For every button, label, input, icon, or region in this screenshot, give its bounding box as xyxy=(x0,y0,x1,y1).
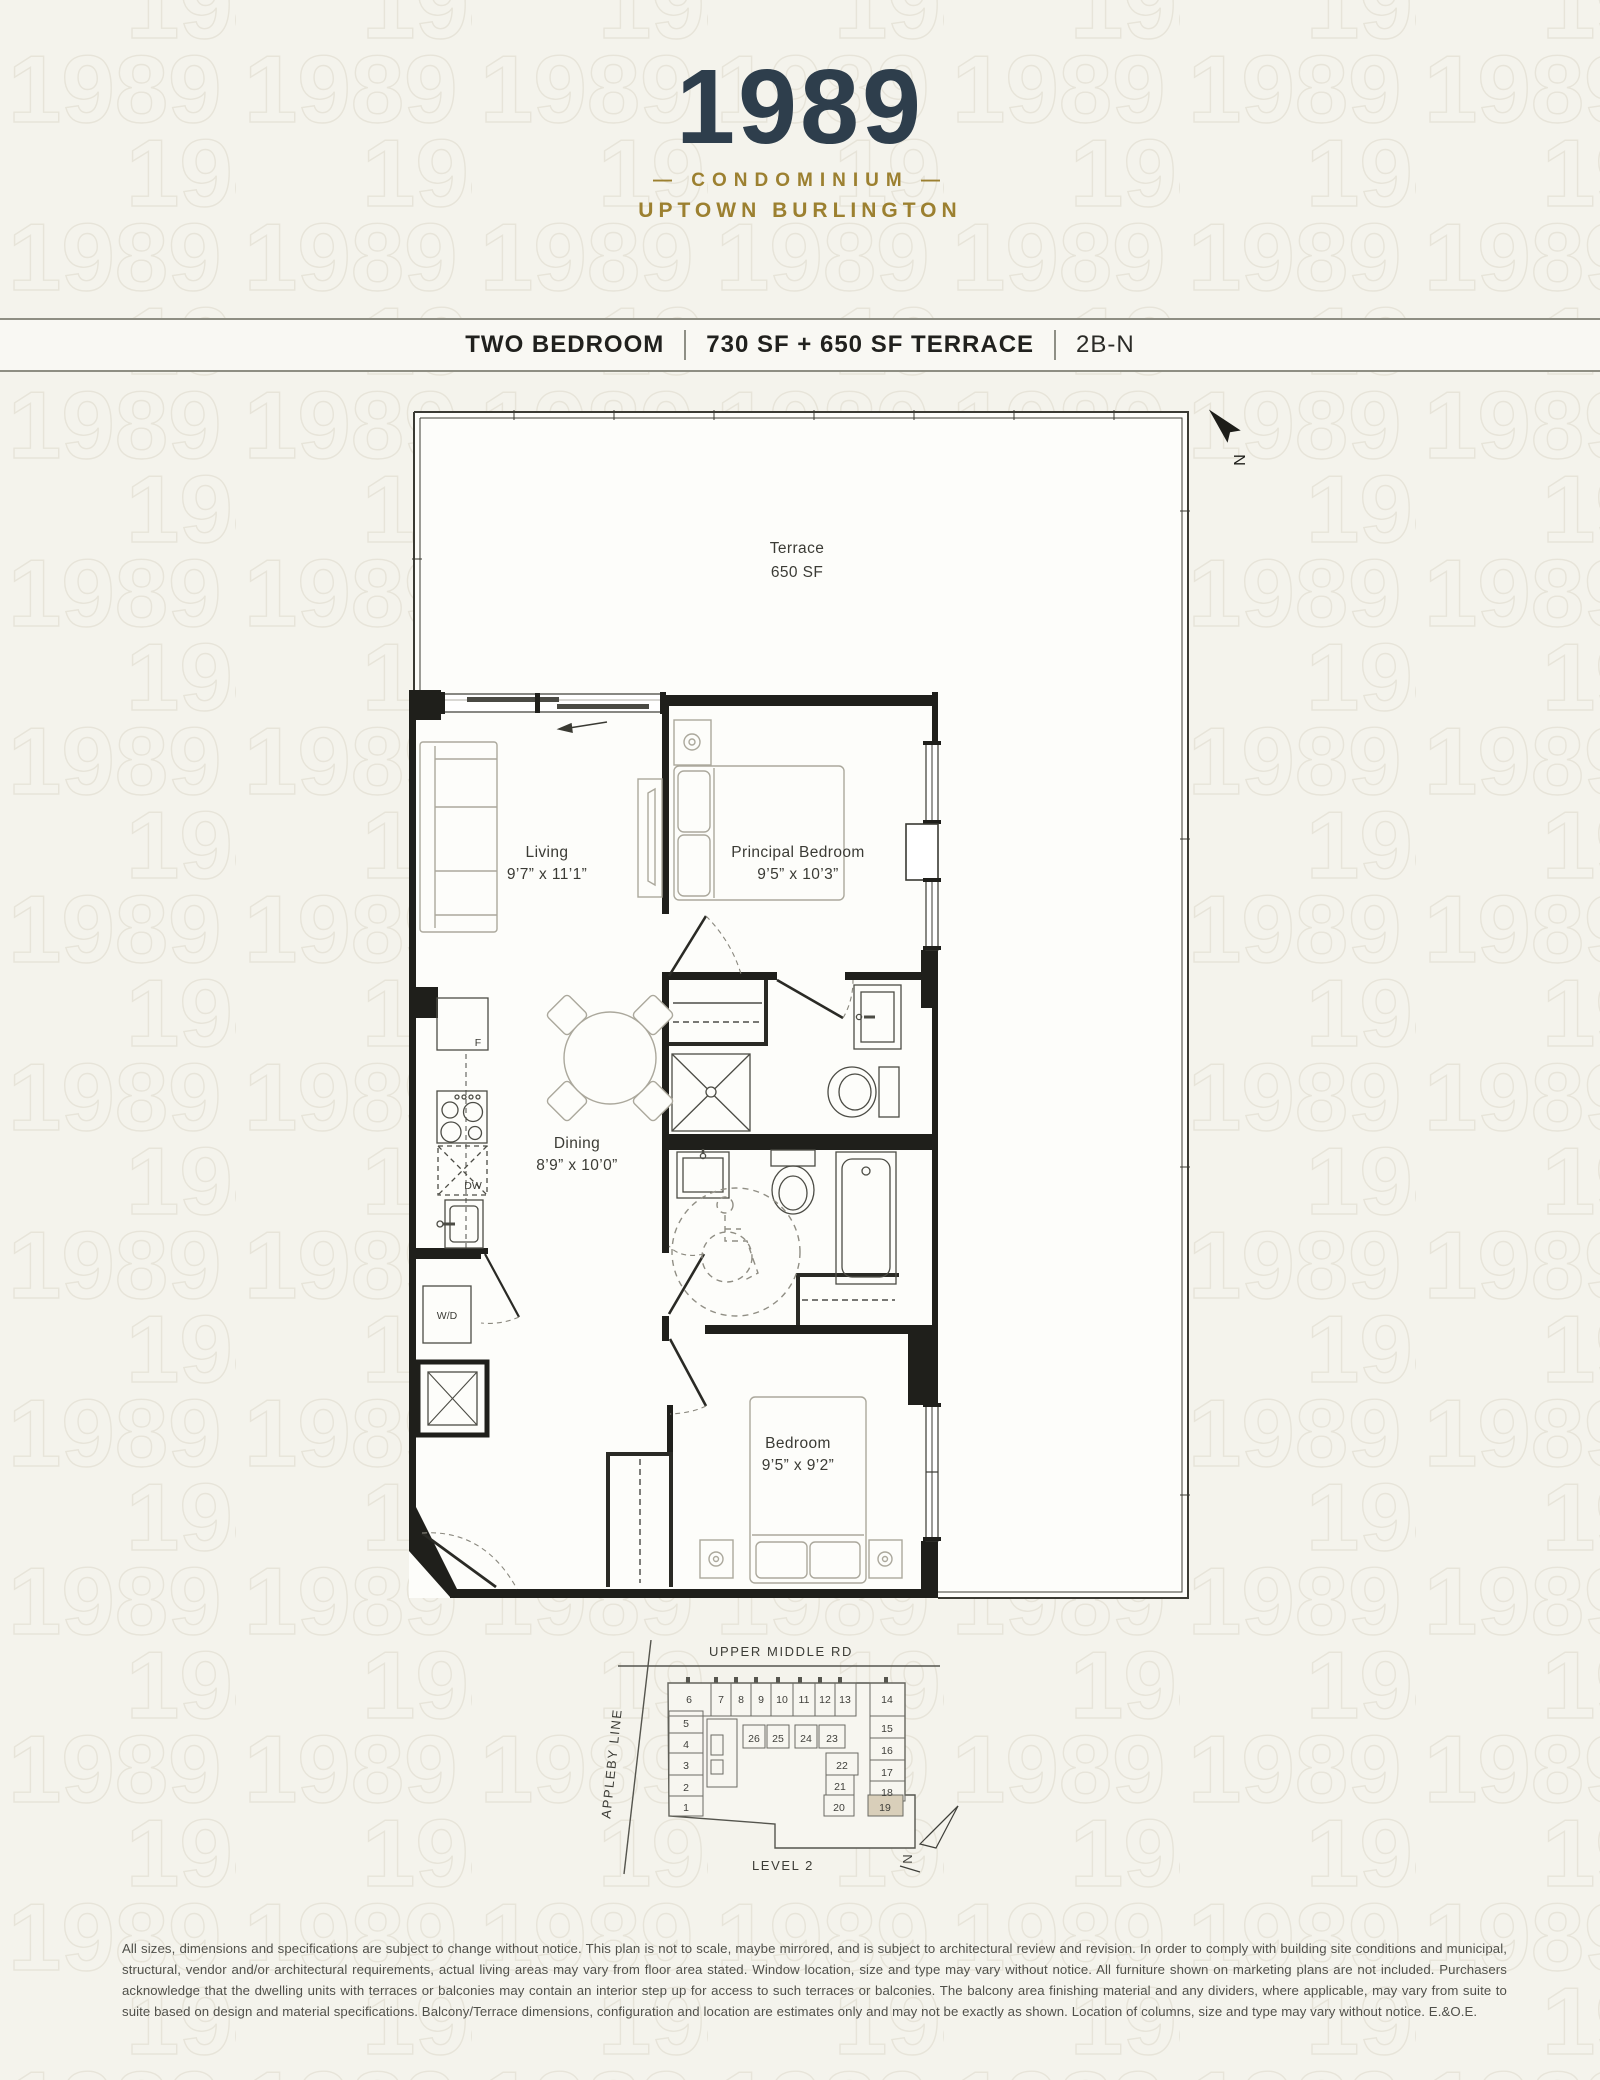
north-arrow-label: N xyxy=(1232,454,1249,466)
unit-number-9: 9 xyxy=(758,1694,764,1706)
plan-area: 730 SF + 650 SF TERRACE xyxy=(706,331,1034,359)
plan-floor-fill xyxy=(409,412,1189,1598)
bedroom-dims: 9’5” x 9’2” xyxy=(762,1457,834,1474)
terrace-area: 650 SF xyxy=(771,564,823,581)
terrace-name: Terrace xyxy=(770,540,824,557)
floorplan-drawing: Terrace 650 SF xyxy=(409,409,1192,1609)
unit-number-21: 21 xyxy=(834,1781,846,1793)
disclaimer-text: All sizes, dimensions and specifications… xyxy=(122,1938,1507,2022)
living-dims: 9’7” x 11’1” xyxy=(507,866,587,883)
title-divider xyxy=(1054,330,1056,360)
principal-bedroom-label: Principal Bedroom xyxy=(731,844,864,861)
unit-number-8: 8 xyxy=(738,1694,744,1706)
dishwasher-label: DW xyxy=(464,1180,482,1192)
unit-number-7: 7 xyxy=(718,1694,724,1706)
plan-unit-code: 2B-N xyxy=(1076,331,1135,359)
keyplan-road-top-label: UPPER MIDDLE RD xyxy=(709,1644,853,1659)
unit-number-10: 10 xyxy=(776,1694,788,1706)
unit-number-1: 1 xyxy=(683,1802,689,1814)
balcony-ticks xyxy=(686,1677,888,1683)
unit-number-13: 13 xyxy=(839,1694,851,1706)
bedroom-label: Bedroom xyxy=(765,1435,831,1452)
dining-table xyxy=(564,1012,656,1104)
unit-number-5: 5 xyxy=(683,1718,689,1730)
dining-label: Dining xyxy=(554,1135,600,1152)
living-label: Living xyxy=(526,844,569,861)
dining-furniture xyxy=(546,994,674,1122)
unit-number-26: 26 xyxy=(748,1733,760,1745)
title-divider xyxy=(684,330,686,360)
floorplan-sheet: 1989 1989 1989 1989 — CONDOMINIUM — UPTO… xyxy=(0,0,1600,2080)
unit-number-22: 22 xyxy=(836,1760,848,1772)
fridge-label: F xyxy=(475,1037,481,1049)
unit-number-18: 18 xyxy=(881,1787,893,1799)
logo-condominium: — CONDOMINIUM — xyxy=(0,170,1600,192)
plan-title-bar: TWO BEDROOM 730 SF + 650 SF TERRACE 2B-N xyxy=(0,318,1600,372)
plan-type: TWO BEDROOM xyxy=(465,331,664,359)
unit-number-24: 24 xyxy=(800,1733,812,1745)
unit-number-4: 4 xyxy=(683,1739,689,1751)
unit-number-20: 20 xyxy=(833,1802,845,1814)
unit-number-14: 14 xyxy=(881,1694,893,1706)
logo-year: 1989 xyxy=(0,52,1600,162)
washer-dryer-label: W/D xyxy=(437,1310,458,1322)
logo-uptown-burlington: UPTOWN BURLINGTON xyxy=(0,199,1600,223)
keyplan-level-label: LEVEL 2 xyxy=(752,1858,814,1873)
unit-number-23: 23 xyxy=(826,1733,838,1745)
unit-number-3: 3 xyxy=(683,1760,689,1772)
unit-number-6: 6 xyxy=(686,1694,692,1706)
unit-number-17: 17 xyxy=(881,1767,893,1779)
unit-number-19: 19 xyxy=(879,1802,891,1814)
keyplan: UPPER MIDDLE RD APPLEBY LINE xyxy=(568,1640,998,1940)
north-arrow-needle xyxy=(1202,403,1240,442)
keyplan-road-left-label: APPLEBY LINE xyxy=(598,1708,624,1820)
building-outline xyxy=(668,1683,915,1848)
unit-number-12: 12 xyxy=(819,1694,831,1706)
unit-number-25: 25 xyxy=(772,1733,784,1745)
unit-number-11: 11 xyxy=(799,1694,810,1706)
appleby-line xyxy=(624,1640,651,1874)
unit-number-2: 2 xyxy=(683,1782,689,1794)
dining-dims: 8’9” x 10’0” xyxy=(536,1157,617,1174)
unit-number-15: 15 xyxy=(881,1723,893,1735)
unit-number-16: 16 xyxy=(881,1745,893,1757)
brand-logo: 1989 — CONDOMINIUM — UPTOWN BURLINGTON xyxy=(0,52,1600,223)
principal-bedroom-dims: 9’5” x 10’3” xyxy=(757,866,838,883)
living-window xyxy=(439,692,666,714)
north-arrow: N xyxy=(1198,398,1278,493)
keyplan-north-label: N xyxy=(900,1854,915,1863)
